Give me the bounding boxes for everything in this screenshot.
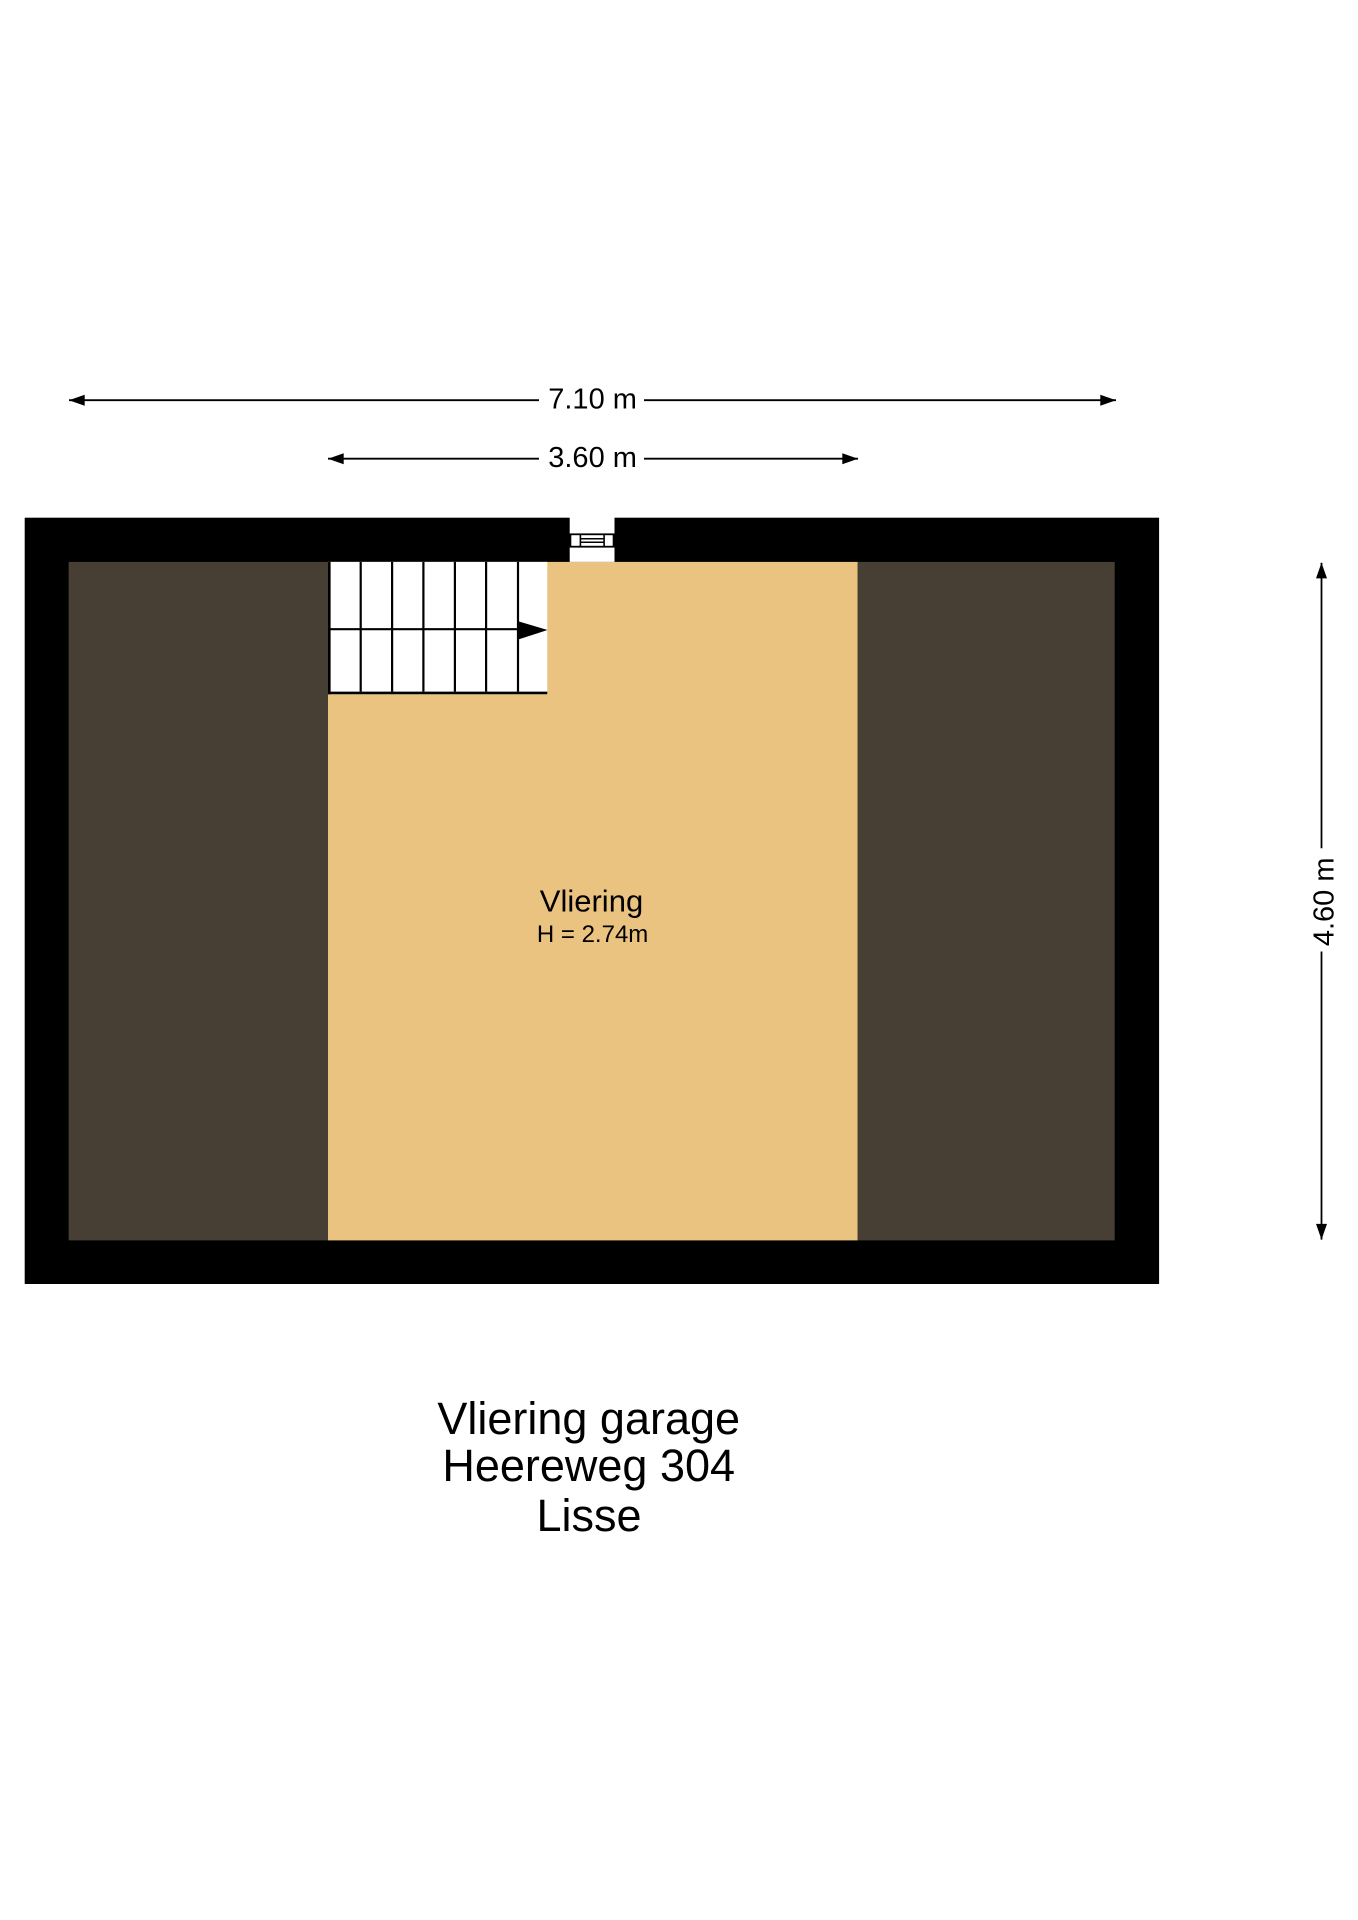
svg-text:Heereweg 304: Heereweg 304 xyxy=(442,1440,735,1491)
svg-text:H = 2.74m: H = 2.74m xyxy=(537,921,648,948)
svg-text:Vliering garage: Vliering garage xyxy=(437,1393,740,1444)
svg-text:Vliering: Vliering xyxy=(540,883,643,918)
svg-text:Lisse: Lisse xyxy=(536,1490,641,1541)
svg-text:4.60 m: 4.60 m xyxy=(1309,857,1341,946)
svg-text:7.10 m: 7.10 m xyxy=(548,384,637,416)
svg-text:3.60 m: 3.60 m xyxy=(548,442,637,474)
